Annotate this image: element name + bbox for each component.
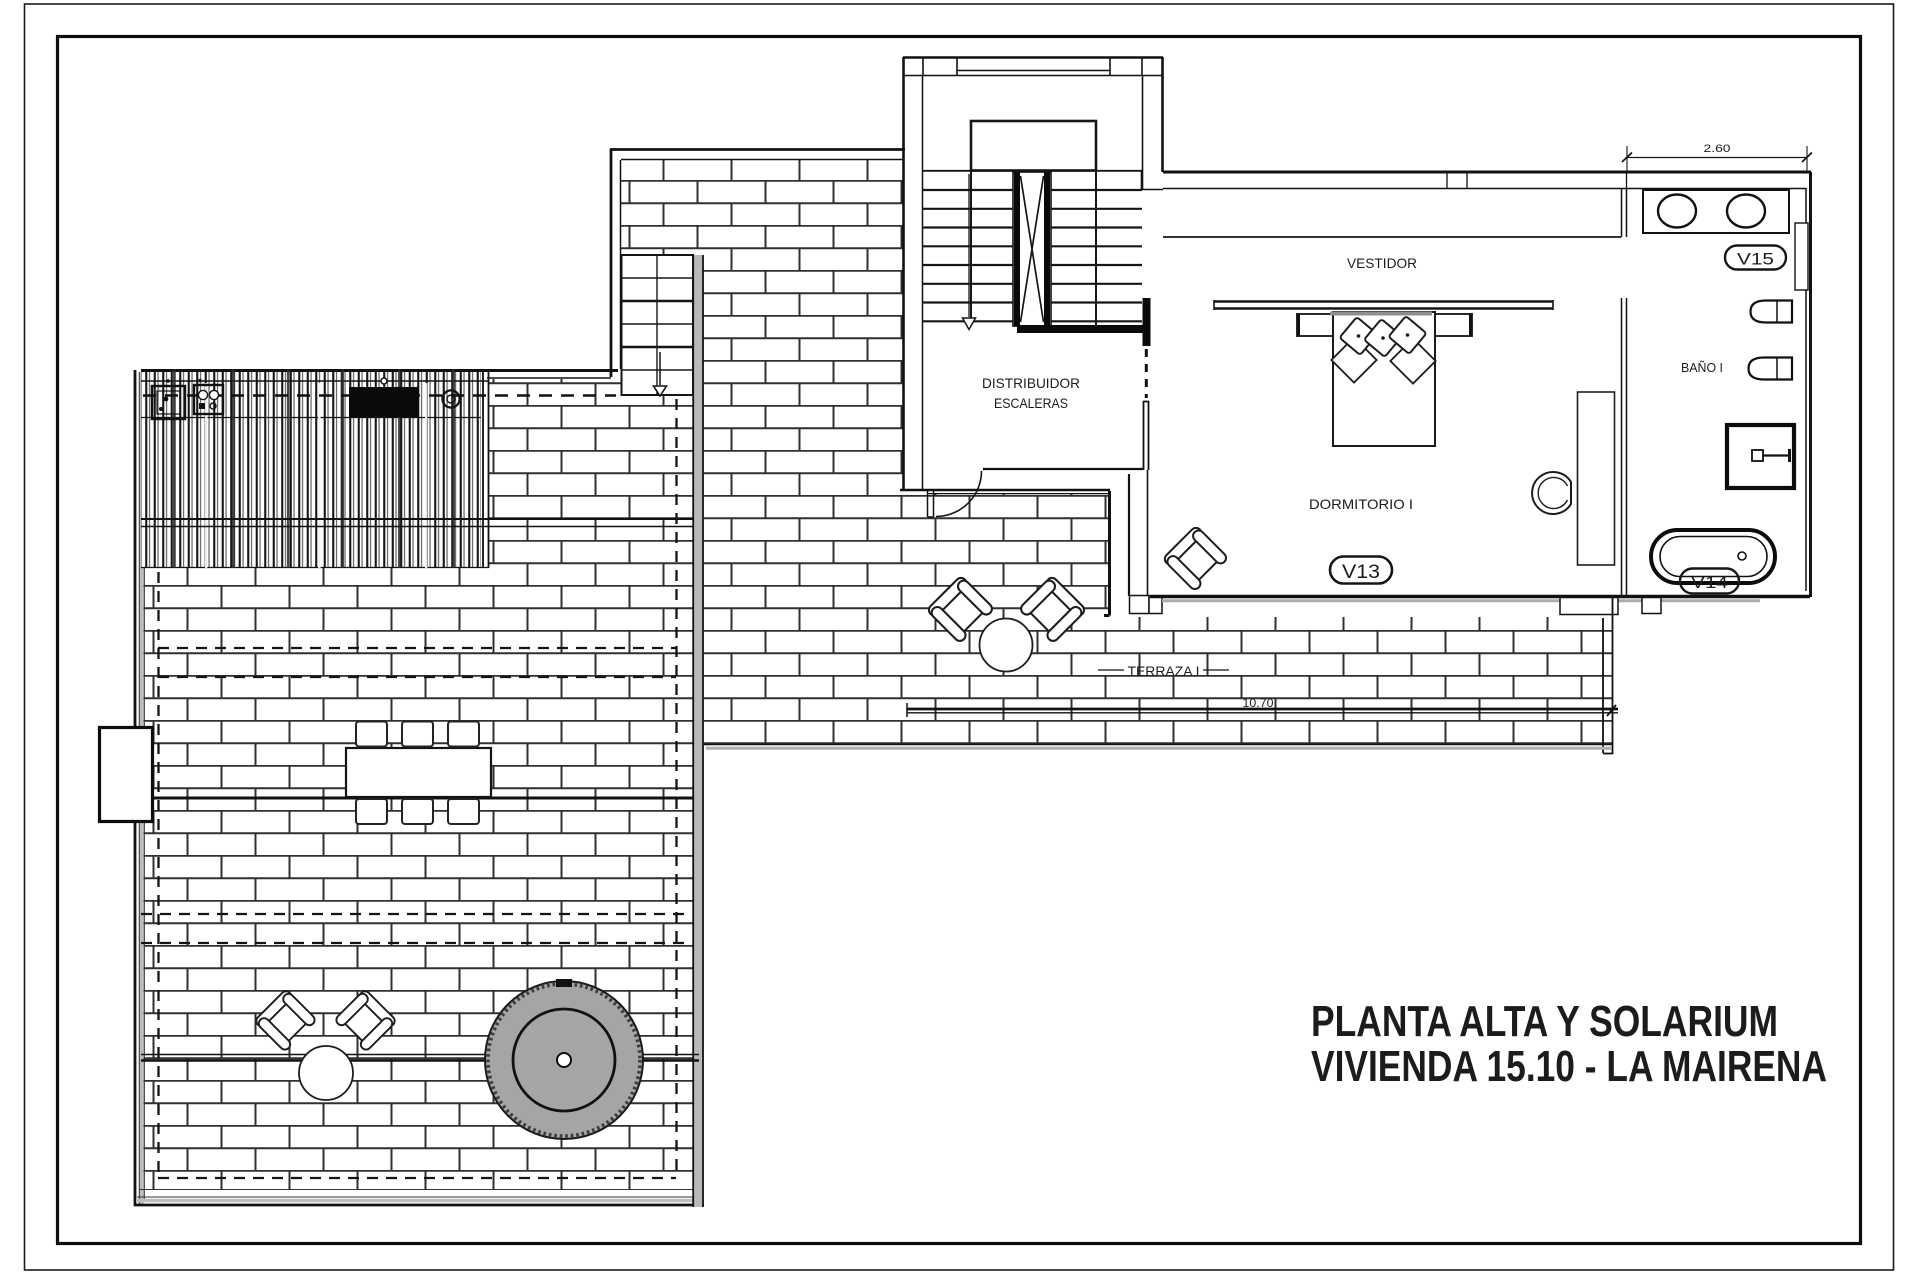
svg-text:DISTRIBUIDOR: DISTRIBUIDOR: [982, 375, 1080, 391]
svg-text:PLANTA ALTA Y SOLARIUM: PLANTA ALTA Y SOLARIUM: [1311, 997, 1778, 1046]
svg-text:2.60: 2.60: [1704, 143, 1731, 155]
svg-text:BAÑO I: BAÑO I: [1681, 360, 1723, 375]
svg-text:DORMITORIO I: DORMITORIO I: [1309, 496, 1413, 512]
svg-text:VESTIDOR: VESTIDOR: [1347, 255, 1417, 271]
svg-text:TERRAZA I: TERRAZA I: [1128, 664, 1200, 679]
svg-text:VIVIENDA 15.10 - LA MAIRENA: VIVIENDA 15.10 - LA MAIRENA: [1311, 1042, 1827, 1091]
svg-text:V15: V15: [1737, 250, 1774, 269]
svg-text:10.70: 10.70: [1243, 698, 1274, 710]
svg-text:V14: V14: [1691, 573, 1728, 592]
svg-text:V13: V13: [1342, 562, 1380, 583]
svg-text:ESCALERAS: ESCALERAS: [994, 395, 1068, 411]
